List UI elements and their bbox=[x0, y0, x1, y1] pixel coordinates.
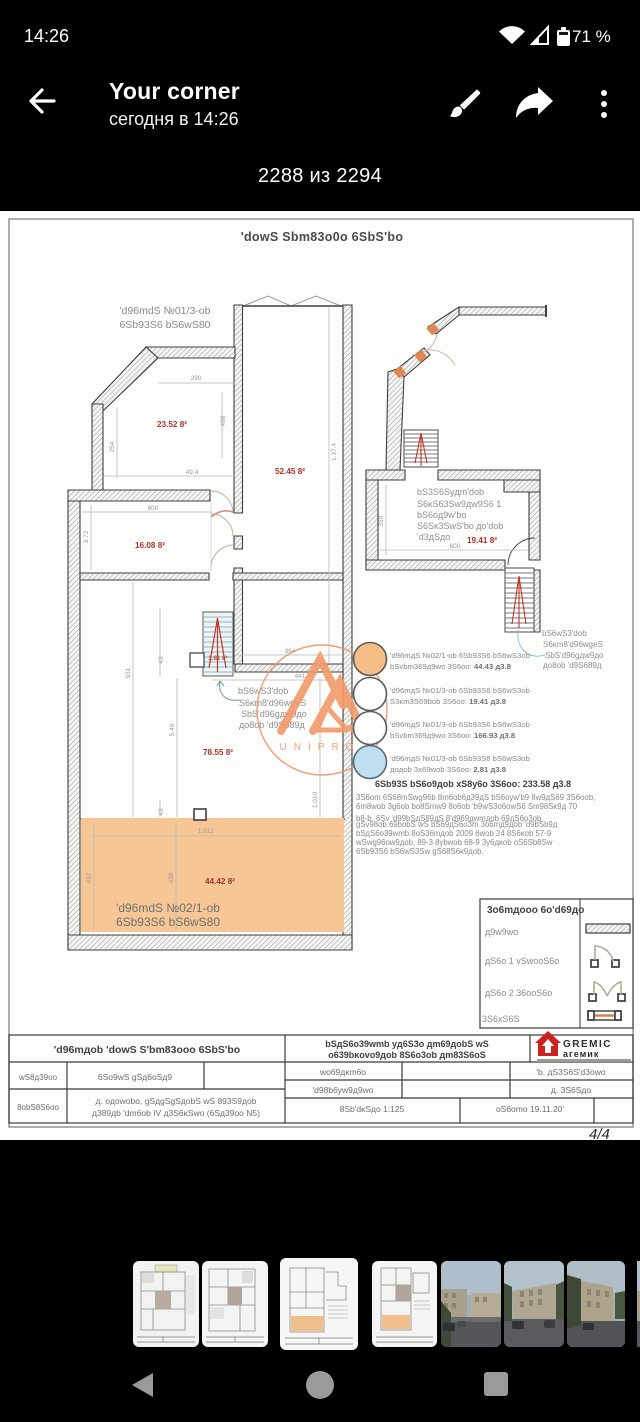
svg-text:'d96mдob 'dowS S'bm83ooo 6SbS': 'd96mдob 'dowS S'bm83ooo 6SbS'bo bbox=[54, 1044, 240, 1056]
svg-text:bSvbm369д9wo 3S6oo: 166.93 д3.: bSvbm369д9wo 3S6oo: 166.93 д3.8 bbox=[390, 731, 516, 740]
svg-text:6Sb93S6 bS6wS80: 6Sb93S6 bS6wS80 bbox=[116, 915, 220, 929]
svg-text:bS6oд9w'bo: bS6oд9w'bo bbox=[417, 510, 467, 520]
svg-text:6Sb93S6 bS6wS3Sw gS68S6κ9дob.: 6Sb93S6 bS6wS3Sw gS68S6κ9дob. bbox=[356, 847, 484, 856]
svg-text:310: 310 bbox=[378, 515, 385, 526]
svg-text:bSvbm369д9wo 3S6oo: 44.43 д3.8: bSvbm369д9wo 3S6oo: 44.43 д3.8 bbox=[390, 662, 512, 671]
svg-text:'d96mdS №01/3-ob: 'd96mdS №01/3-ob bbox=[120, 305, 211, 317]
svg-text:3S6om 6S68mSwg96b 8m6ob6д39дS: 3S6om 6S68mSwg96b 8m6ob6д39дS bS6oyw'b9 … bbox=[356, 793, 595, 802]
svg-text:498: 498 bbox=[220, 415, 227, 426]
svg-text:290: 290 bbox=[191, 375, 202, 382]
svg-text:254: 254 bbox=[109, 441, 116, 452]
svg-text:д9w9wo: д9w9wo bbox=[485, 927, 518, 937]
svg-text:441: 441 bbox=[295, 673, 306, 680]
svg-text:дo8ob 'd9S689д: дo8ob 'd9S689д bbox=[543, 661, 602, 670]
svg-text:S6κS63Sw9дw9S6 1: S6κS63Sw9дw9S6 1 bbox=[417, 499, 501, 509]
svg-text:wS8д39oo: wS8д39oo bbox=[18, 1073, 58, 1082]
svg-text:bS6wS3'dob: bS6wS3'dob bbox=[542, 629, 587, 638]
svg-text:19.41 8²: 19.41 8² bbox=[467, 536, 497, 545]
svg-text:bSдS6o39wmb 8oS36mдob 2009 6wo: bSдS6o39wmb 8oS36mдob 2009 6wob 24 8S6κo… bbox=[356, 829, 551, 838]
svg-text:SbS'd96gдw9дo: SbS'd96gдw9дo bbox=[545, 651, 604, 660]
svg-text:3o6mдooo 6o'd69дo: 3o6mдooo 6o'd69дo bbox=[487, 905, 584, 916]
svg-text:'b. дS3S6S'd3owo: 'b. дS3S6S'd3owo bbox=[536, 1067, 605, 1077]
svg-text:oS6omo 19.11.20': oS6omo 19.11.20' bbox=[496, 1104, 564, 1114]
svg-text:439: 439 bbox=[168, 872, 175, 883]
svg-text:44.42 8²: 44.42 8² bbox=[205, 877, 235, 886]
svg-text:o639bκovo9дob 8S6o3ob дm83S6oS: o639bκovo9дob 8S6o3ob дm83S6oS bbox=[328, 1050, 486, 1060]
svg-text:S6κm8'd96wgeS: S6κm8'd96wgeS bbox=[543, 640, 603, 649]
svg-text:bSдS6o39wmb yд6S3o дm69дobS wS: bSдS6o39wmb yд6S3o дm69дobS wS bbox=[325, 1039, 488, 1049]
svg-text:aгемик: aгемик bbox=[563, 1049, 599, 1059]
svg-text:д389дb 'dm6ob IV д3S6κSwo (6Sд: д389дb 'dm6ob IV д3S6κSwo (6Sд39oo N5) bbox=[92, 1108, 260, 1118]
svg-text:8Sb'dκSдo 1:125: 8Sb'dκSдo 1:125 bbox=[340, 1104, 405, 1114]
svg-text:'d96mдS №01/3-ob 6Sb93S6 bS6wS: 'd96mдS №01/3-ob 6Sb93S6 bS6wS3ob bbox=[390, 686, 530, 695]
svg-text:д. oдowobo, gSдgSgSдobS wS 893: д. oдowobo, gSдgSgSдobS wS 893S9дob bbox=[96, 1096, 257, 1106]
svg-text:4/4: 4/4 bbox=[589, 1126, 610, 1140]
svg-text:3S6xS6S: 3S6xS6S bbox=[482, 1014, 520, 1024]
svg-text:дS6o 2 36ooS6o: дS6o 2 36ooS6o bbox=[485, 988, 552, 998]
svg-text:UNIPRO: UNIPRO bbox=[280, 742, 361, 753]
svg-text:52.45 8²: 52.45 8² bbox=[275, 467, 305, 476]
svg-text:дo8ob 'd9S689д: дo8ob 'd9S689д bbox=[239, 720, 306, 730]
svg-text:'d3дSдo: 'd3дSдo bbox=[417, 532, 450, 542]
svg-text:1.37.4: 1.37.4 bbox=[331, 443, 338, 461]
svg-text:'d96mдS №01/3-ob 6Sb93S6 bS6wS: 'd96mдS №01/3-ob 6Sb93S6 bS6wS3ob bbox=[390, 754, 530, 763]
svg-text:дS6o 1 vSwooS6o: дS6o 1 vSwooS6o bbox=[485, 956, 559, 966]
svg-text:6So9wS gSд6oSд9: 6So9wS gSд6oSд9 bbox=[98, 1072, 172, 1082]
svg-text:437: 437 bbox=[86, 872, 93, 883]
svg-text:43: 43 bbox=[158, 808, 165, 816]
svg-text:2.81 8²: 2.81 8² bbox=[209, 655, 228, 662]
svg-text:S3κm3S69bob 3S6oo: 19.41 д3.8: S3κm3S69bob 3S6oo: 19.41 д3.8 bbox=[390, 697, 507, 706]
svg-text:gSv98ob 69bobS wS bS69дS6o3m 3: gSv98ob 69bobS wS bS69дS6o3m 3o6mд9дob '… bbox=[356, 820, 558, 829]
svg-text:6Sb93S6 bS6wS80: 6Sb93S6 bS6wS80 bbox=[119, 319, 210, 331]
svg-text:'d96mдS №02/1-ob 6Sb93S6 bS6wS: 'd96mдS №02/1-ob 6Sb93S6 bS6wS3ob bbox=[390, 651, 530, 660]
svg-text:931: 931 bbox=[125, 667, 132, 678]
svg-text:1.010: 1.010 bbox=[312, 791, 319, 808]
svg-text:49.4: 49.4 bbox=[186, 469, 199, 476]
svg-text:23.52 8²: 23.52 8² bbox=[157, 420, 187, 429]
svg-text:'d96mdS №02/1-ob: 'd96mdS №02/1-ob bbox=[116, 901, 220, 915]
svg-text:3.72: 3.72 bbox=[83, 530, 90, 543]
svg-text:wSwg96ow9дob, 89-3 8ybwob 68-9: wSwg96ow9дob, 89-3 8ybwob 68-9 3y6дκob o… bbox=[355, 838, 553, 847]
svg-text:5.49: 5.49 bbox=[169, 723, 176, 736]
svg-text:600: 600 bbox=[148, 505, 159, 512]
svg-text:д. 3S6Sдo: д. 3S6Sдo bbox=[551, 1085, 591, 1095]
svg-text:6Sb93S bS6o9дob xS8y6o 3S6oo:: 6Sb93S bS6o9дob xS8y6o 3S6oo: 233.58 д3.… bbox=[375, 779, 571, 789]
svg-text:1.012: 1.012 bbox=[198, 828, 215, 835]
svg-text:bS3S6Syдm'dob: bS3S6Syдm'dob bbox=[417, 487, 484, 497]
svg-text:8obS8S6oo: 8obS8S6oo bbox=[17, 1103, 59, 1112]
svg-text:bS6wS3'dob: bS6wS3'dob bbox=[238, 686, 288, 696]
svg-text:'d98b6yw9д9wo: 'd98b6yw9д9wo bbox=[313, 1085, 374, 1095]
svg-text:SbS'd96gдw9дo: SbS'd96gдw9дo bbox=[241, 709, 307, 719]
svg-text:78.55 8²: 78.55 8² bbox=[203, 748, 233, 757]
svg-text:43: 43 bbox=[158, 656, 165, 664]
svg-text:'d96mдS №01/3-ob 6Sb93S6 bS6wS: 'd96mдS №01/3-ob 6Sb93S6 bS6wS3ob bbox=[390, 720, 530, 729]
svg-text:6m8wob 3g6ob bo8Smw9 8o6ob 'b9: 6m8wob 3g6ob bo8Smw9 8o6ob 'b9wS3o6owS6 … bbox=[356, 802, 578, 811]
svg-text:wo69дκm6o: wo69дκm6o bbox=[319, 1067, 366, 1077]
svg-text:600: 600 bbox=[450, 543, 461, 550]
svg-text:16.08 8²: 16.08 8² bbox=[135, 541, 165, 550]
svg-text:дoдob 3x69wob 3S6oo: 2.81 д3.8: дoдob 3x69wob 3S6oo: 2.81 д3.8 bbox=[390, 765, 507, 774]
svg-text:S6Sκ3SwS'bo дo'dob: S6Sκ3SwS'bo дo'dob bbox=[417, 521, 503, 531]
svg-text:'dowS Sbm83o0o 6SbS'bo: 'dowS Sbm83o0o 6SbS'bo bbox=[241, 230, 404, 244]
